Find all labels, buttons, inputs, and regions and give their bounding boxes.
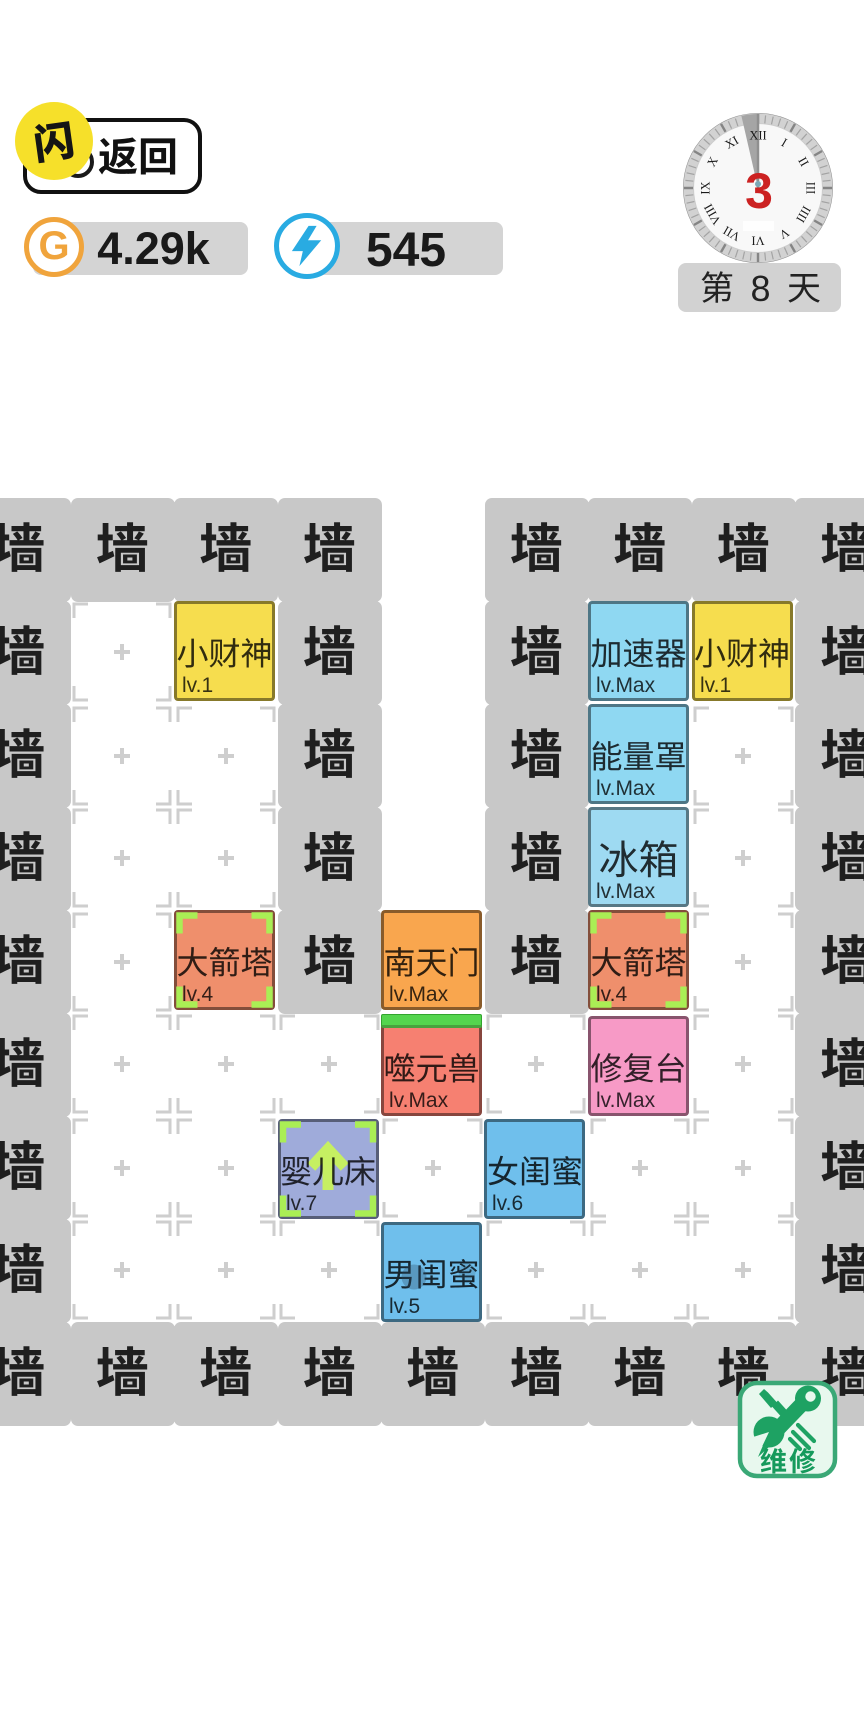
svg-text:II: II — [795, 155, 811, 169]
svg-text:VII: VII — [721, 223, 743, 244]
svg-text:VIII: VIII — [701, 201, 724, 227]
svg-text:XII: XII — [749, 129, 766, 143]
svg-text:V: V — [777, 225, 792, 242]
svg-text:3: 3 — [745, 163, 773, 219]
svg-text:VI: VI — [751, 234, 764, 248]
svg-text:I: I — [779, 135, 790, 149]
svg-text:IIII: IIII — [793, 204, 813, 225]
svg-text:III: III — [804, 182, 818, 195]
svg-text:X: X — [704, 154, 721, 169]
svg-text:IX: IX — [699, 181, 713, 194]
svg-text:XI: XI — [723, 133, 741, 152]
